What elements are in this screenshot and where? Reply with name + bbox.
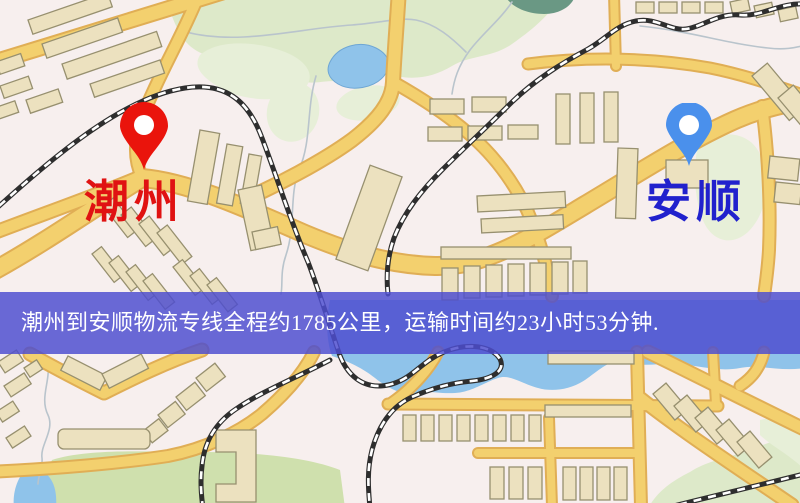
origin-pin-icon[interactable] [119,102,169,170]
origin-label: 潮州 [84,180,184,225]
destination-pin-icon[interactable] [665,103,713,166]
destination-label: 安顺 [646,180,746,225]
logistics-route-map: 潮州到安顺物流专线全程约1785公里，运输时间约23小时53分钟. 潮州 安顺 [0,0,800,503]
route-info-text: 潮州到安顺物流专线全程约1785公里，运输时间约23小时53分钟. [0,292,800,354]
route-info-banner: 潮州到安顺物流专线全程约1785公里，运输时间约23小时53分钟. [0,292,800,354]
map-canvas [0,0,800,503]
